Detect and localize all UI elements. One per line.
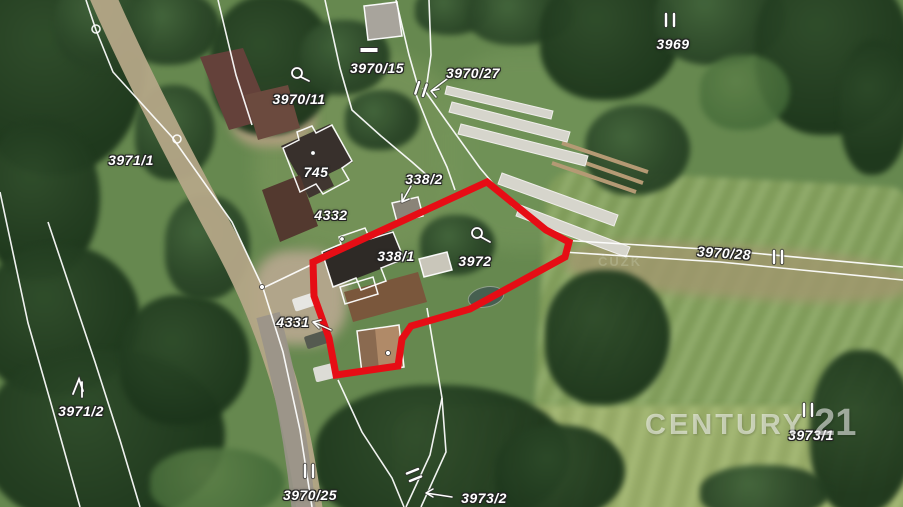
grass-gap [150, 448, 285, 507]
tree-mass [495, 425, 625, 507]
tree-mass [420, 215, 495, 275]
tree-mass [840, 40, 903, 175]
grass-gap [700, 55, 790, 130]
van [313, 362, 339, 382]
tree-mass [165, 195, 250, 300]
gravel-area [252, 250, 347, 345]
tree-mass [125, 0, 220, 65]
tree-mass [120, 295, 250, 425]
tree-mass [135, 85, 215, 180]
double-tick-icon [305, 465, 313, 477]
cadastral-map-view: 39693970/153970/273970/113971/1745338/24… [0, 0, 903, 507]
pool [466, 283, 505, 310]
